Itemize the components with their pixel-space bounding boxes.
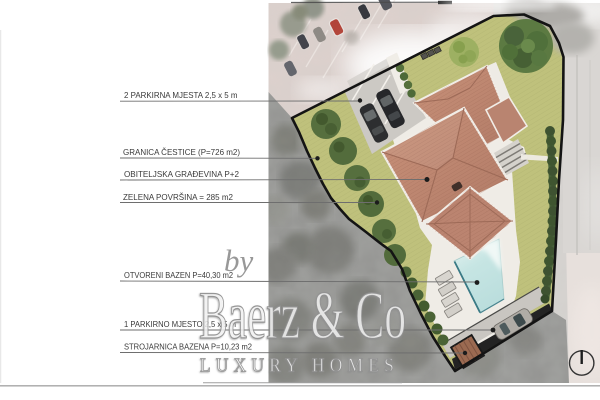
svg-text:2 PARKIRNA MJESTA 2,5 x 5 m: 2 PARKIRNA MJESTA 2,5 x 5 m (124, 90, 238, 100)
svg-text:GRANICA ČESTICE (P=726 m2): GRANICA ČESTICE (P=726 m2) (123, 147, 240, 157)
svg-text:OBITELJSKA GRAĐEVINA P+2: OBITELJSKA GRAĐEVINA P+2 (124, 169, 239, 179)
svg-text:ZELENA POVRŠINA = 285 m2: ZELENA POVRŠINA = 285 m2 (123, 192, 233, 202)
svg-text:LUXURY HOMES: LUXURY HOMES (200, 355, 399, 377)
svg-text:by: by (224, 243, 254, 278)
svg-text:Baerz & Co: Baerz & Co (199, 277, 406, 353)
